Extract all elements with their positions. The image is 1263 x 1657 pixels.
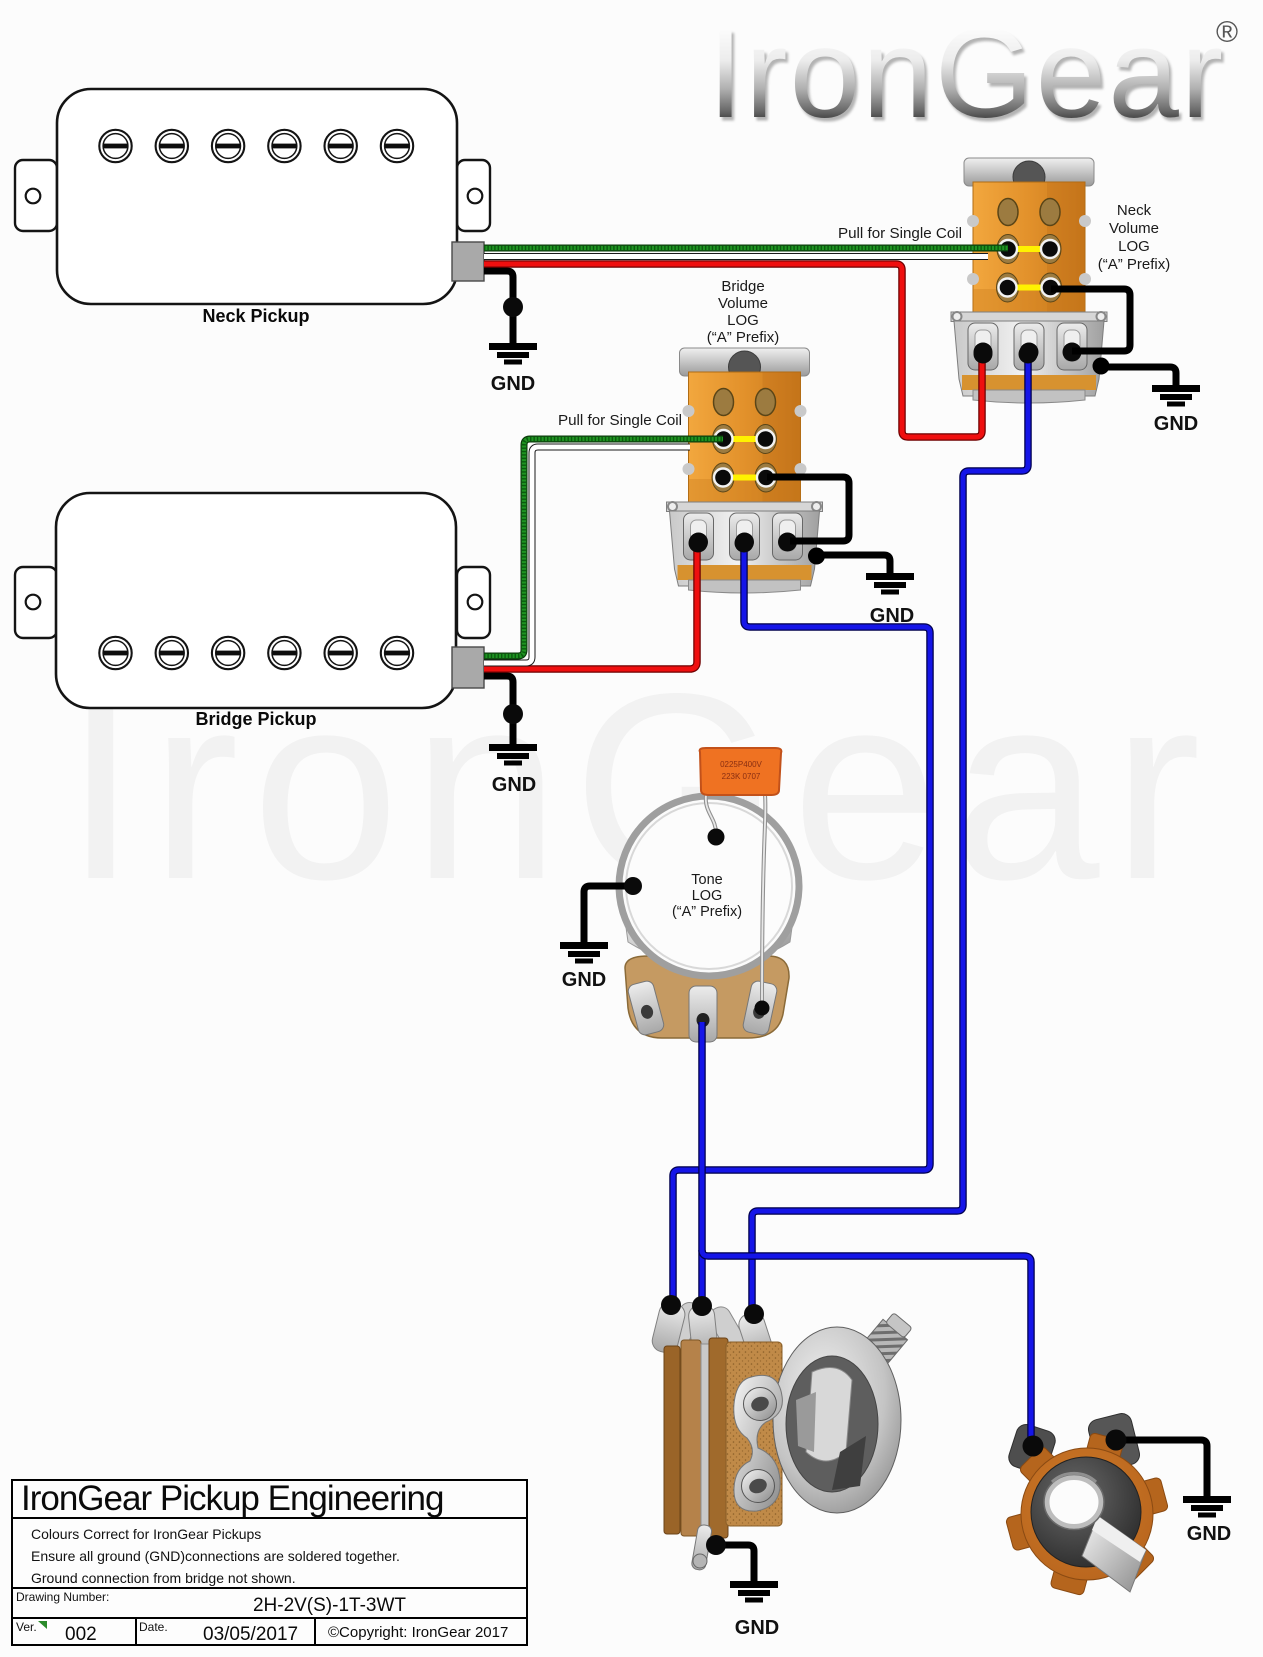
svg-text:GND: GND <box>735 1617 779 1639</box>
svg-text:GND: GND <box>491 373 535 395</box>
svg-text:LOG: LOG <box>1118 238 1150 255</box>
svg-text:GND: GND <box>562 969 606 991</box>
svg-text:Pull for Single Coil: Pull for Single Coil <box>838 225 962 242</box>
svg-text:(“A” Prefix): (“A” Prefix) <box>672 904 742 920</box>
svg-text:LOG: LOG <box>692 888 723 904</box>
svg-text:LOG: LOG <box>727 312 759 329</box>
svg-text:Volume: Volume <box>718 295 768 312</box>
svg-text:0225P400V: 0225P400V <box>720 760 762 769</box>
svg-text:Pull for Single Coil: Pull for Single Coil <box>558 412 682 429</box>
svg-text:(“A” Prefix): (“A” Prefix) <box>1098 256 1171 273</box>
svg-text:Neck Pickup: Neck Pickup <box>202 306 309 326</box>
svg-text:Bridge: Bridge <box>721 278 764 295</box>
svg-text:Bridge Pickup: Bridge Pickup <box>195 709 316 729</box>
svg-text:GND: GND <box>492 774 536 796</box>
svg-text:GND: GND <box>1154 413 1198 435</box>
svg-text:Tone: Tone <box>691 872 722 888</box>
svg-text:223K 0707: 223K 0707 <box>722 772 761 781</box>
svg-text:Volume: Volume <box>1109 220 1159 237</box>
svg-text:GND: GND <box>870 605 914 627</box>
svg-text:(“A” Prefix): (“A” Prefix) <box>707 329 780 346</box>
svg-text:GND: GND <box>1187 1523 1231 1545</box>
svg-text:Neck: Neck <box>1117 202 1152 219</box>
